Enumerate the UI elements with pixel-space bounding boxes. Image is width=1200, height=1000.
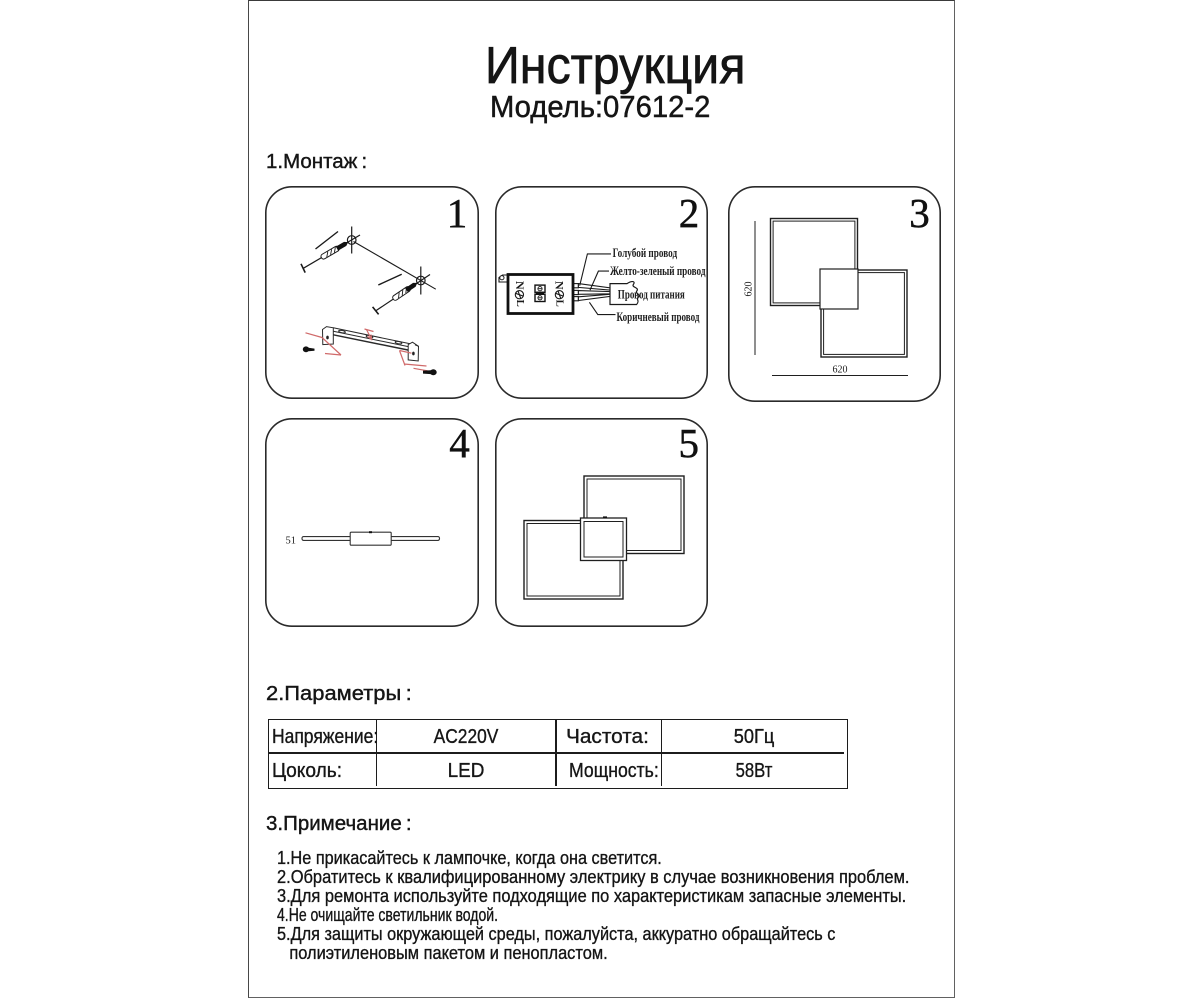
svg-text:Коричневый провод: Коричневый провод — [617, 310, 700, 324]
svg-text:2: 2 — [679, 190, 700, 236]
svg-text:L: L — [514, 300, 526, 307]
svg-text:L: L — [553, 300, 565, 307]
svg-text:1: 1 — [447, 190, 468, 236]
svg-text:4: 4 — [449, 420, 470, 466]
svg-text:620: 620 — [744, 282, 755, 297]
svg-text:5: 5 — [679, 420, 700, 466]
svg-text:Голубой провод: Голубой провод — [613, 246, 678, 260]
svg-text:51: 51 — [286, 536, 297, 547]
svg-text:N: N — [513, 281, 527, 290]
svg-text:Желто-зеленый провод: Желто-зеленый провод — [610, 264, 706, 278]
svg-text:N: N — [553, 281, 567, 290]
svg-text:620: 620 — [833, 365, 848, 376]
svg-text:3: 3 — [909, 190, 930, 236]
svg-text:Провод питания: Провод питания — [618, 288, 685, 302]
